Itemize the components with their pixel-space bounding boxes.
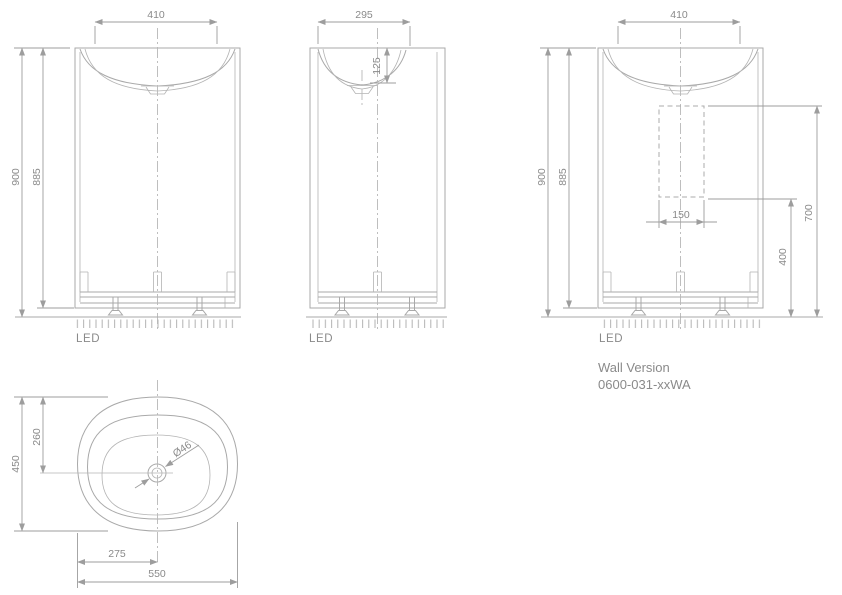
plan-dim-drain-diameter: Ø46 — [135, 439, 199, 488]
front-dim-height-body-label: 885 — [31, 168, 43, 186]
wall-dim-cutout-width: 150 — [646, 200, 717, 228]
plan-dim-drain-from-left: 275 — [78, 533, 158, 588]
wall-dim-cutout-bottom-height: 400 — [708, 199, 797, 317]
wall-caption-title: Wall Version — [598, 360, 670, 375]
plan-dim-depth-label: 450 — [10, 455, 22, 473]
wall-foot-right — [716, 297, 730, 315]
front-dim-height-body: 885 — [31, 48, 74, 308]
wall-dim-cutout-width-label: 150 — [672, 209, 690, 221]
side-view: 295 125 LED — [306, 9, 447, 345]
wall-dim-height-body-label: 885 — [557, 168, 569, 186]
wall-caption-code: 0600-031-xxWA — [598, 377, 691, 392]
side-dim-bowl-depth-label: 125 — [371, 57, 383, 75]
wall-dim-width: 410 — [618, 9, 740, 44]
wall-dim-width-label: 410 — [670, 9, 688, 21]
front-foot-left — [109, 297, 123, 315]
wall-dim-height-body: 885 — [557, 48, 597, 308]
front-ground-label: LED — [76, 333, 100, 345]
wall-dim-cutout-bottom-label: 400 — [777, 248, 789, 266]
wall-dim-cutout-top-label: 700 — [803, 204, 815, 222]
side-foot-front — [335, 297, 349, 315]
plan-dim-drain-diameter-label: Ø46 — [171, 439, 194, 460]
plan-dim-width-label: 550 — [148, 568, 166, 580]
side-ground-hatch — [308, 320, 444, 330]
plan-dim-depth: 450 — [10, 397, 108, 531]
wall-ground-label: LED — [599, 333, 623, 345]
wall-ground-hatch — [599, 320, 761, 330]
side-ground-label: LED — [309, 333, 333, 345]
drawing-canvas: 410 900 885 LED — [0, 0, 842, 595]
front-dim-width-label: 410 — [147, 9, 165, 21]
plan-dim-drain-from-left-label: 275 — [108, 548, 126, 560]
wall-dim-cutout-top-height: 700 — [708, 106, 822, 317]
plan-dim-drain-offset-label: 260 — [31, 428, 43, 446]
wall-view: 410 900 885 150 700 400 LED Wall Vers — [536, 9, 823, 392]
side-dim-width-label: 295 — [355, 9, 373, 21]
front-view: 410 900 885 LED — [10, 9, 241, 345]
side-dim-bowl-depth: 125 — [370, 48, 396, 83]
wall-dim-height-overall-label: 900 — [536, 168, 548, 186]
wall-foot-left — [632, 297, 646, 315]
wall-outlet-zone — [659, 106, 704, 197]
front-dim-height-overall-label: 900 — [10, 168, 22, 186]
front-foot-right — [193, 297, 207, 315]
plan-view: 450 260 Ø46 275 550 — [10, 380, 238, 588]
front-ground-hatch — [76, 320, 238, 330]
side-foot-back — [405, 297, 419, 315]
side-dim-width: 295 — [318, 9, 410, 46]
plan-dim-drain-offset: 260 — [31, 397, 43, 473]
technical-drawing-sheet: 410 900 885 LED — [0, 0, 842, 595]
front-dim-width: 410 — [95, 9, 217, 44]
